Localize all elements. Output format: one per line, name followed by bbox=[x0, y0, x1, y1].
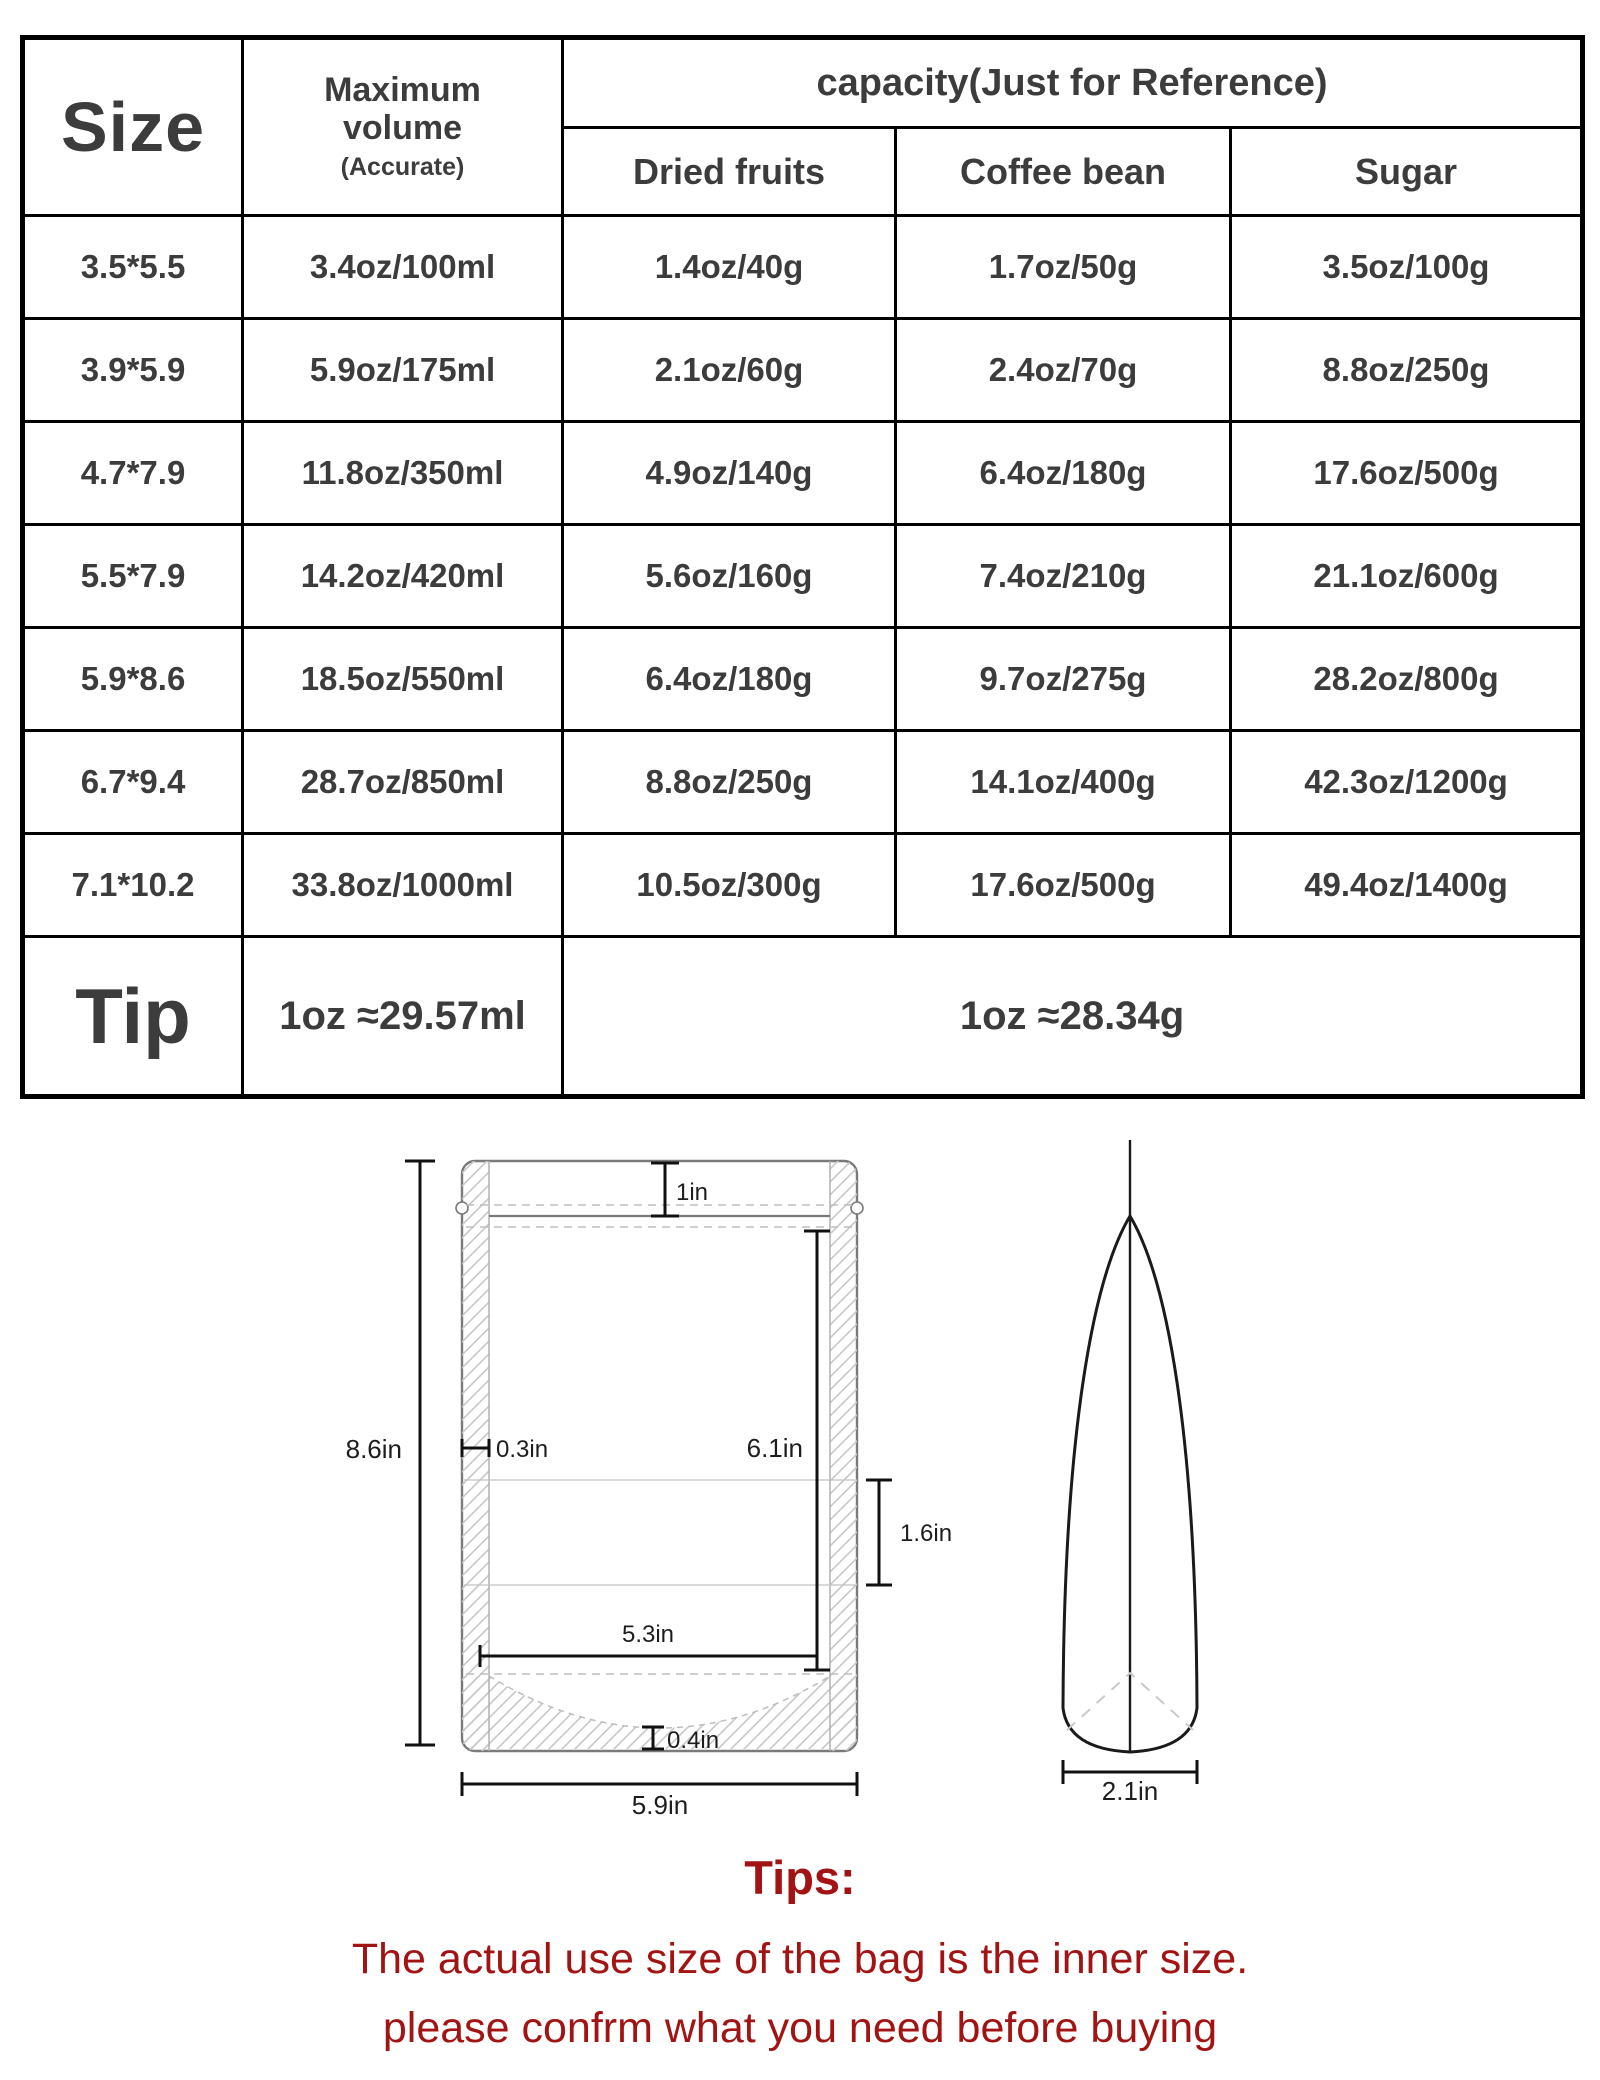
volume-cell: 5.9oz/175ml bbox=[243, 319, 563, 422]
dried-fruits-cell: 5.6oz/160g bbox=[563, 525, 896, 628]
capacity-header: capacity(Just for Reference) bbox=[563, 38, 1583, 128]
coffee-bean-cell: 9.7oz/275g bbox=[896, 628, 1231, 731]
dim-label-side-width: 2.1in bbox=[1102, 1776, 1158, 1806]
dried-fruits-cell: 4.9oz/140g bbox=[563, 422, 896, 525]
tear-notch-right bbox=[851, 1202, 863, 1214]
tip-row: Tip 1oz ≈29.57ml 1oz ≈28.34g bbox=[23, 937, 1583, 1097]
max-volume-label: Maximum volume bbox=[288, 72, 518, 147]
tip-label: Tip bbox=[23, 937, 243, 1097]
tips-line-2: please confrm what you need before buyin… bbox=[0, 1994, 1600, 2063]
sugar-cell: 17.6oz/500g bbox=[1231, 422, 1583, 525]
table-row: 4.7*7.9 11.8oz/350ml 4.9oz/140g 6.4oz/18… bbox=[23, 422, 1583, 525]
dim-label-bottom-gusset: 0.4in bbox=[667, 1727, 719, 1754]
header-row-1: Size Maximum volume (Accurate) capacity(… bbox=[23, 38, 1583, 128]
dim-label-top-zone: 1in bbox=[676, 1179, 708, 1206]
dim-label-seal-width: 0.3in bbox=[496, 1436, 548, 1463]
table-row: 3.5*5.5 3.4oz/100ml 1.4oz/40g 1.7oz/50g … bbox=[23, 216, 1583, 319]
size-header: Size bbox=[23, 38, 243, 216]
dried-fruits-cell: 8.8oz/250g bbox=[563, 731, 896, 834]
size-cell: 7.1*10.2 bbox=[23, 834, 243, 937]
tips-line-1: The actual use size of the bag is the in… bbox=[0, 1925, 1600, 1994]
table-row: 6.7*9.4 28.7oz/850ml 8.8oz/250g 14.1oz/4… bbox=[23, 731, 1583, 834]
size-cell: 5.9*8.6 bbox=[23, 628, 243, 731]
dim-label-inner-width: 5.3in bbox=[622, 1621, 674, 1648]
size-cell: 3.9*5.9 bbox=[23, 319, 243, 422]
bag-dimension-diagram: 8.6in 1in 0.3in 6.1in 1.6in 5.3in 0.4in … bbox=[280, 1108, 1280, 1830]
table-row: 5.9*8.6 18.5oz/550ml 6.4oz/180g 9.7oz/27… bbox=[23, 628, 1583, 731]
tip-volume-conversion: 1oz ≈29.57ml bbox=[243, 937, 563, 1097]
sugar-cell: 42.3oz/1200g bbox=[1231, 731, 1583, 834]
dried-fruits-cell: 6.4oz/180g bbox=[563, 628, 896, 731]
coffee-bean-cell: 17.6oz/500g bbox=[896, 834, 1231, 937]
tips-section: Tips: The actual use size of the bag is … bbox=[0, 1850, 1600, 2063]
dim-label-band: 1.6in bbox=[900, 1520, 952, 1547]
dim-label-total-height: 8.6in bbox=[346, 1434, 402, 1464]
infographic-page: Size Maximum volume (Accurate) capacity(… bbox=[0, 0, 1600, 2080]
sugar-cell: 28.2oz/800g bbox=[1231, 628, 1583, 731]
volume-cell: 3.4oz/100ml bbox=[243, 216, 563, 319]
sugar-cell: 21.1oz/600g bbox=[1231, 525, 1583, 628]
dried-fruits-cell: 1.4oz/40g bbox=[563, 216, 896, 319]
sugar-cell: 3.5oz/100g bbox=[1231, 216, 1583, 319]
coffee-bean-cell: 14.1oz/400g bbox=[896, 731, 1231, 834]
dim-label-inner-height: 6.1in bbox=[747, 1433, 803, 1463]
volume-cell: 11.8oz/350ml bbox=[243, 422, 563, 525]
table-row: 5.5*7.9 14.2oz/420ml 5.6oz/160g 7.4oz/21… bbox=[23, 525, 1583, 628]
sugar-header: Sugar bbox=[1231, 128, 1583, 216]
size-capacity-table: Size Maximum volume (Accurate) capacity(… bbox=[20, 35, 1585, 1099]
sugar-cell: 49.4oz/1400g bbox=[1231, 834, 1583, 937]
size-cell: 6.7*9.4 bbox=[23, 731, 243, 834]
pouch-side-view bbox=[1063, 1140, 1197, 1752]
coffee-bean-header: Coffee bean bbox=[896, 128, 1231, 216]
sugar-cell: 8.8oz/250g bbox=[1231, 319, 1583, 422]
max-volume-header: Maximum volume (Accurate) bbox=[243, 38, 563, 216]
size-cell: 5.5*7.9 bbox=[23, 525, 243, 628]
coffee-bean-cell: 1.7oz/50g bbox=[896, 216, 1231, 319]
table-row: 7.1*10.2 33.8oz/1000ml 10.5oz/300g 17.6o… bbox=[23, 834, 1583, 937]
dried-fruits-header: Dried fruits bbox=[563, 128, 896, 216]
volume-cell: 18.5oz/550ml bbox=[243, 628, 563, 731]
volume-cell: 14.2oz/420ml bbox=[243, 525, 563, 628]
size-cell: 4.7*7.9 bbox=[23, 422, 243, 525]
volume-cell: 33.8oz/1000ml bbox=[243, 834, 563, 937]
dim-label-outer-width: 5.9in bbox=[632, 1790, 688, 1820]
coffee-bean-cell: 6.4oz/180g bbox=[896, 422, 1231, 525]
coffee-bean-cell: 7.4oz/210g bbox=[896, 525, 1231, 628]
coffee-bean-cell: 2.4oz/70g bbox=[896, 319, 1231, 422]
dried-fruits-cell: 2.1oz/60g bbox=[563, 319, 896, 422]
tips-title: Tips: bbox=[0, 1850, 1600, 1905]
volume-cell: 28.7oz/850ml bbox=[243, 731, 563, 834]
size-cell: 3.5*5.5 bbox=[23, 216, 243, 319]
table-row: 3.9*5.9 5.9oz/175ml 2.1oz/60g 2.4oz/70g … bbox=[23, 319, 1583, 422]
tip-weight-conversion: 1oz ≈28.34g bbox=[563, 937, 1583, 1097]
tear-notch-left bbox=[456, 1202, 468, 1214]
dried-fruits-cell: 10.5oz/300g bbox=[563, 834, 896, 937]
max-volume-note: (Accurate) bbox=[244, 153, 561, 182]
